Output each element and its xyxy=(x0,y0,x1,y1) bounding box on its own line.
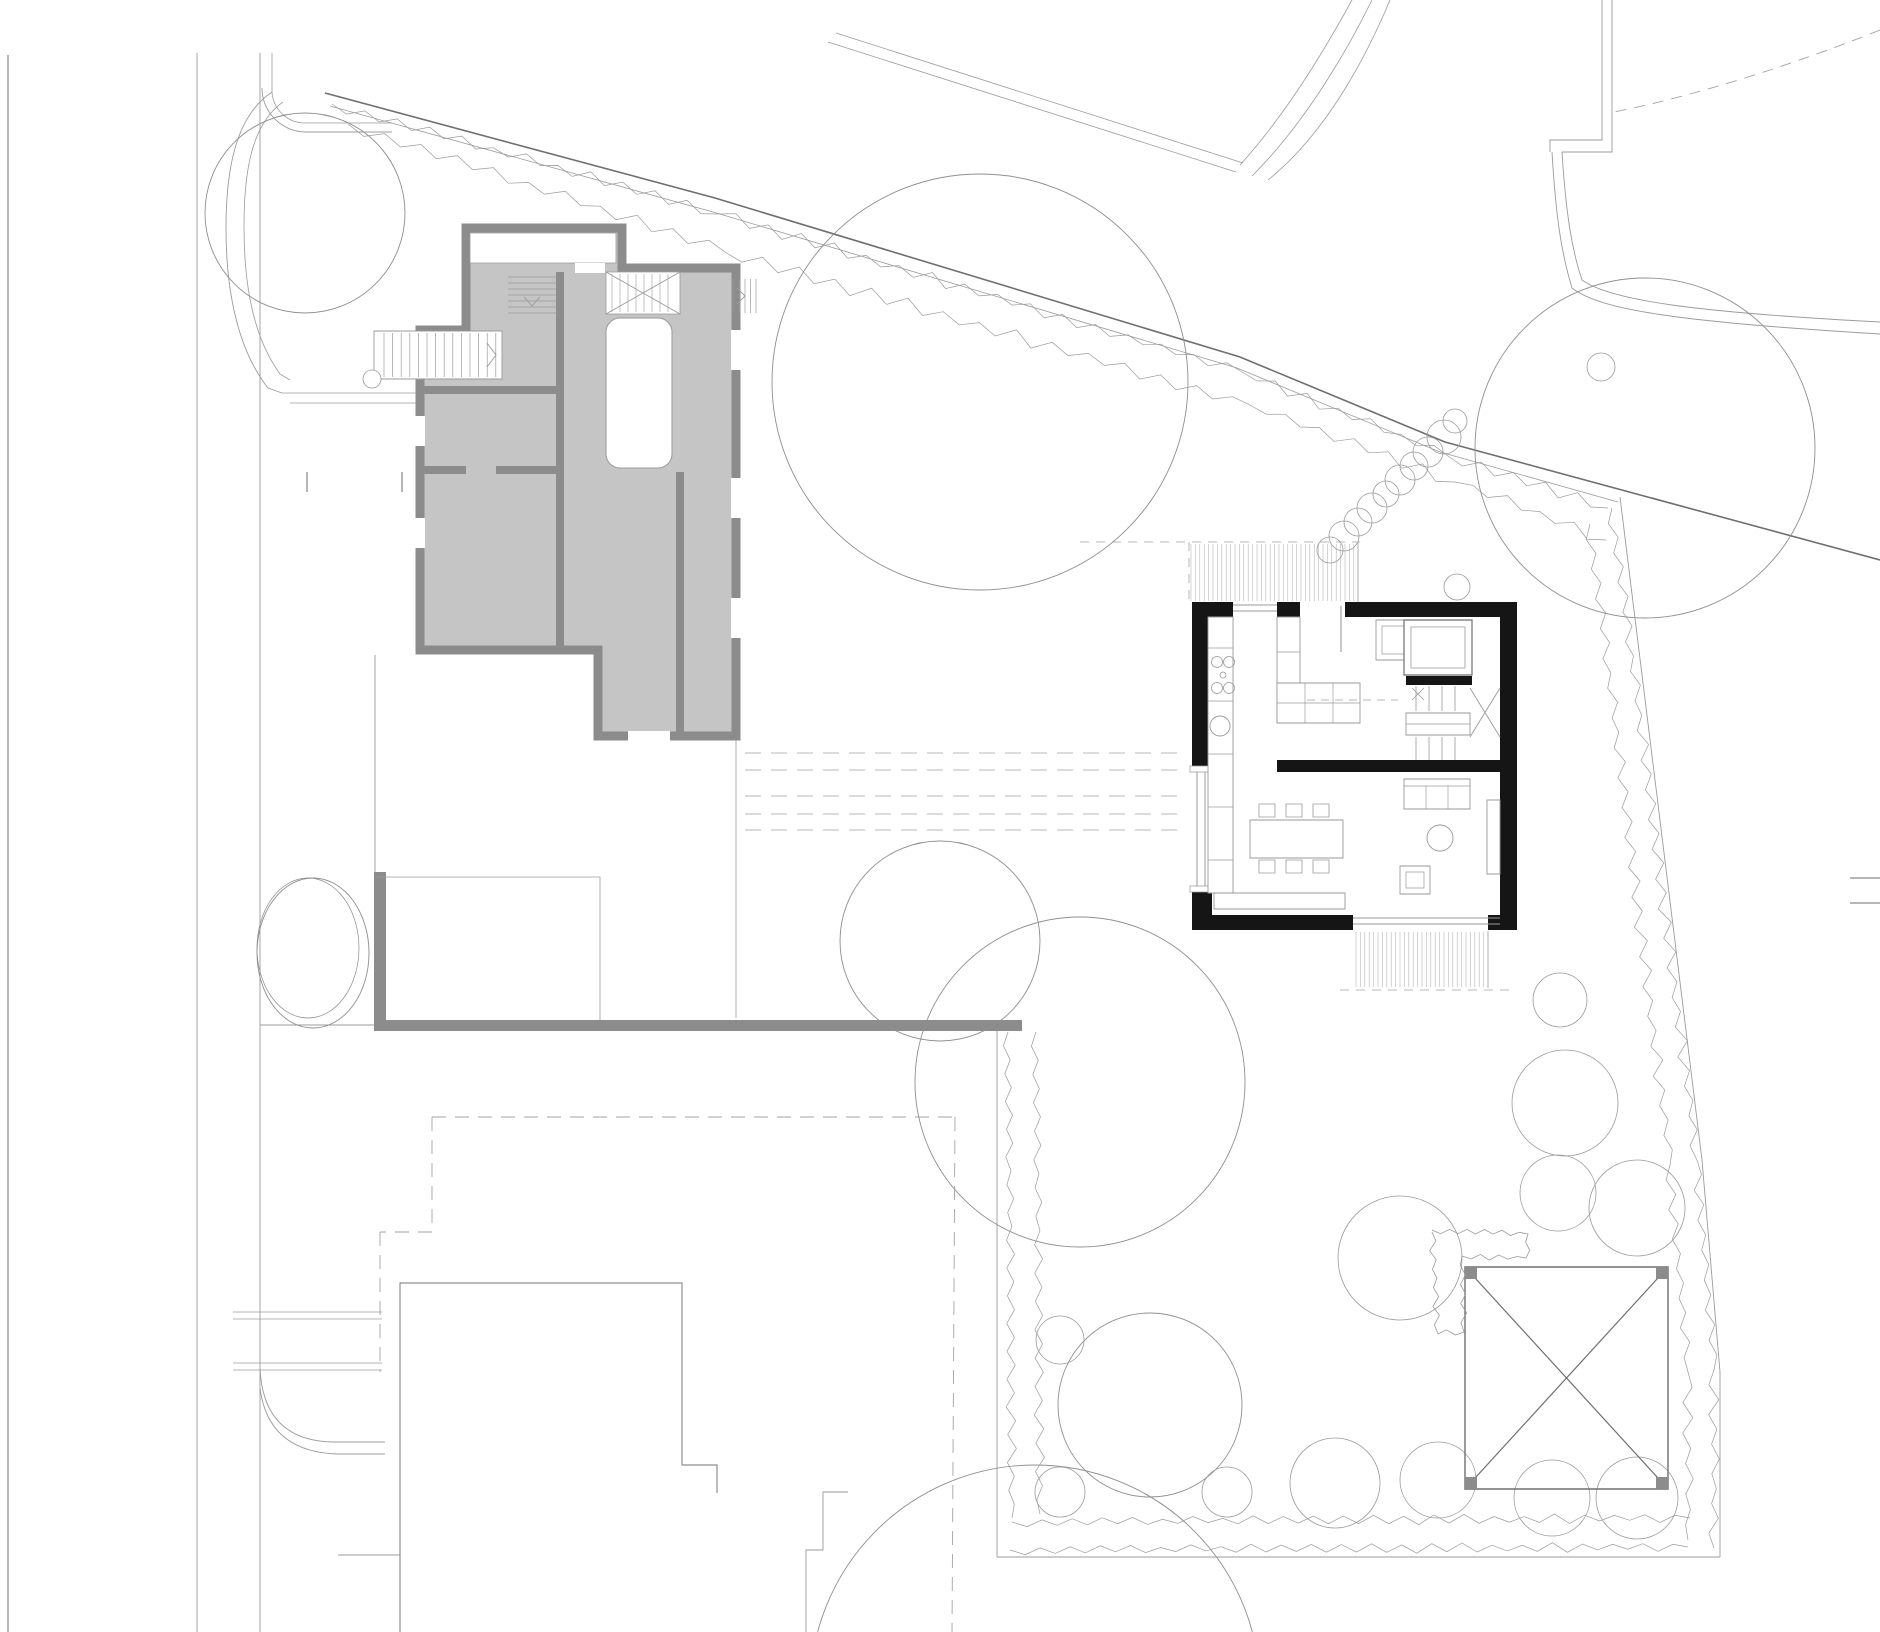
site-plan-drawing xyxy=(0,0,1880,1632)
site-plan-page xyxy=(0,0,1880,1632)
roads xyxy=(8,53,420,1632)
neighbor-structures xyxy=(400,1283,848,1632)
new-building xyxy=(1190,602,1517,930)
bushes xyxy=(1035,353,1685,1539)
step-path-dashes xyxy=(745,753,1186,830)
property-dashed xyxy=(380,1117,955,1632)
pergola xyxy=(1430,1229,1668,1489)
existing-building xyxy=(307,228,756,741)
retaining-wall xyxy=(260,738,1022,1031)
garden-hedges xyxy=(1003,508,1719,1555)
